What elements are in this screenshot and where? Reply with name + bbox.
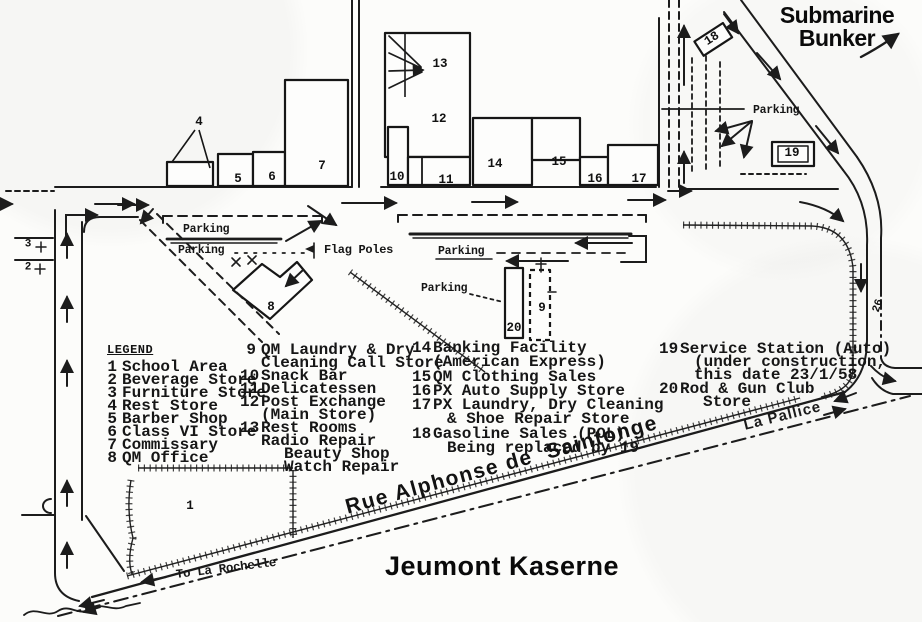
legend-item-19: 19Service Station (Auto)(under construct…	[659, 343, 891, 383]
building-17-number: 17	[631, 173, 646, 186]
legend-item-14: 14Banking Facility(American Express)	[412, 341, 663, 370]
building-3-number: 3	[25, 240, 32, 251]
building-6-number: 6	[268, 171, 276, 184]
map-canvas: Submarine Bunker Jeumont Kaserne Rue Alp…	[0, 0, 922, 622]
building-8-number: 8	[267, 301, 275, 314]
legend-column-3: 14Banking Facility(American Express) 15Q…	[412, 341, 663, 455]
map-linework	[0, 0, 922, 622]
building-1-number: 1	[186, 500, 194, 513]
parking-label-1: Parking	[183, 224, 229, 236]
buildings	[167, 23, 814, 340]
building-2-number: 2	[25, 263, 32, 274]
legend-heading: LEGEND	[107, 344, 153, 357]
parking-label-2: Parking	[178, 245, 224, 257]
building-7-number: 7	[318, 160, 326, 173]
page-title: Jeumont Kaserne	[352, 551, 652, 582]
building-14-number: 14	[487, 158, 502, 171]
building-12-number: 12	[431, 113, 446, 126]
building-10-number: 10	[389, 171, 404, 184]
flag-poles-label: Flag Poles	[324, 244, 393, 256]
legend-item-17: 17PX Laundry, Dry Cleaning& Shoe Repair …	[412, 398, 663, 427]
building-9-number: 9	[538, 302, 546, 315]
legend-column-4: 19Service Station (Auto)(under construct…	[659, 343, 891, 409]
building-19-number: 19	[784, 147, 799, 160]
legend-item-20: 20Rod & Gun ClubStore	[659, 383, 891, 409]
building-20-number: 20	[506, 322, 521, 335]
submarine-bunker-line2: Bunker	[760, 27, 914, 50]
building-5-number: 5	[234, 173, 242, 186]
parking-label-4: Parking	[421, 283, 467, 295]
building-11-number: 11	[438, 174, 453, 187]
building-16-number: 16	[587, 173, 602, 186]
building-13-number: 13	[432, 58, 447, 71]
submarine-bunker-line1: Submarine	[760, 4, 914, 27]
submarine-bunker-label: Submarine Bunker	[760, 4, 914, 51]
parking-label-5: Parking	[753, 105, 799, 117]
parking-label-3: Parking	[438, 246, 484, 258]
legend-item-18: 18Gasoline Sales (POL)Being replaced by …	[412, 427, 663, 456]
parking-markings	[140, 56, 806, 342]
building-4-number: 4	[195, 116, 203, 129]
building-15-number: 15	[551, 156, 566, 169]
